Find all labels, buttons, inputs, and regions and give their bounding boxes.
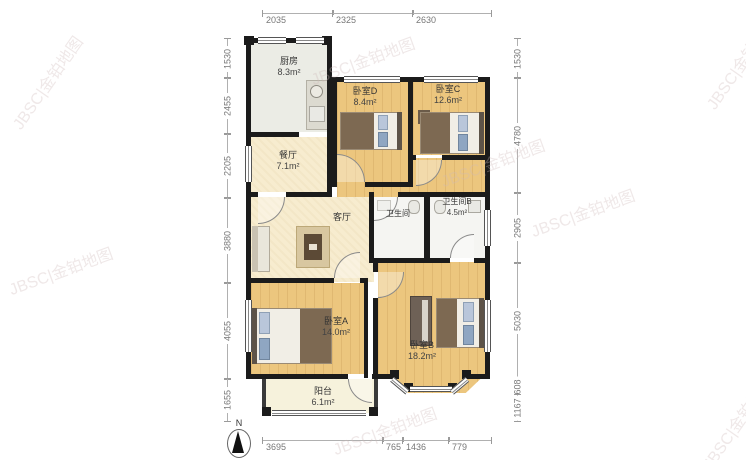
compass-north-label: N — [222, 418, 256, 428]
room-area: 6.1m² — [311, 397, 334, 407]
bed-pillow — [259, 338, 270, 360]
room-area: 4.5m² — [447, 208, 467, 217]
dimension-left: 4055 — [224, 282, 231, 380]
room-name: 卧室A — [324, 316, 348, 326]
bed-pillow — [458, 115, 468, 132]
window — [484, 300, 491, 352]
room-label-bedroom-b: 卧室B18.2m² — [390, 340, 454, 362]
compass-icon: N — [222, 420, 256, 458]
wall — [332, 182, 337, 187]
room-area: 14.0m² — [322, 327, 350, 337]
window — [272, 410, 366, 416]
room-name: 卧室D — [353, 86, 378, 96]
dimension-right: 2905 — [514, 192, 521, 264]
bed-blanket — [421, 113, 450, 153]
dimension-bottom: 765 — [382, 437, 404, 444]
dimension-left: 1530 — [224, 38, 231, 79]
room-name: 卫生间 — [386, 209, 410, 218]
watermark: JBSC|金铂地图 — [5, 240, 116, 300]
wall — [474, 258, 490, 263]
room-name: 客厅 — [333, 212, 351, 222]
dimension-bottom: 3695 — [262, 437, 384, 444]
room-name: 卫生间B — [442, 197, 471, 206]
bed-headboard — [479, 112, 484, 154]
room-name: 卧室C — [436, 84, 461, 94]
dimension-top: 2035 — [262, 10, 334, 17]
window — [258, 37, 286, 44]
room-label-living: 客厅 — [320, 212, 364, 223]
room-area: 8.3m² — [277, 67, 300, 77]
room-label-balcony: 阳台6.1m² — [292, 386, 354, 408]
balcony-post — [262, 407, 271, 416]
window — [296, 37, 324, 44]
wall — [365, 182, 412, 187]
room-label-bathroom-b: 卫生间B4.5m² — [428, 196, 486, 218]
room-name: 餐厅 — [279, 150, 297, 160]
dimension-right: 1167 — [514, 394, 521, 422]
bed-pillow — [458, 134, 468, 151]
dimension-top: 2325 — [332, 10, 414, 17]
dimension-left: 1655 — [224, 378, 231, 422]
dimension-bottom: 779 — [448, 437, 492, 444]
room-area: 12.6m² — [434, 95, 462, 105]
room-label-bathroom: 卫生间 — [372, 208, 424, 219]
wall — [373, 262, 378, 272]
dimension-right: 4780 — [514, 77, 521, 194]
window — [424, 76, 478, 83]
wardrobe — [410, 296, 432, 346]
room-name: 厨房 — [280, 56, 298, 66]
room-area: 8.4m² — [353, 97, 376, 107]
dimension-top: 2630 — [412, 10, 492, 17]
tv — [309, 244, 317, 250]
wall — [286, 192, 327, 197]
bed-pillow — [259, 312, 270, 334]
window — [245, 300, 252, 352]
bed-pillow — [378, 132, 388, 147]
balcony-post — [369, 407, 378, 416]
window — [344, 76, 400, 83]
wall — [246, 38, 251, 138]
kitchen-sink — [310, 85, 323, 98]
bed-blanket — [341, 113, 374, 149]
dimension-left: 2455 — [224, 77, 231, 135]
bed-headboard — [397, 112, 402, 150]
room-area: 18.2m² — [408, 351, 436, 361]
watermark: JBSC|金铂地图 — [695, 370, 746, 460]
wall — [369, 258, 450, 263]
room-label-bedroom-c: 卧室C12.6m² — [412, 84, 484, 106]
wall — [246, 132, 299, 137]
floor-plan: 厨房8.3m² 卧室D8.4m² 卧室C12.6m² 餐厅7.1m² 客厅 卫生… — [0, 0, 746, 460]
room-label-kitchen: 厨房8.3m² — [258, 56, 320, 78]
bed-pillow — [463, 325, 474, 345]
dimension-left: 2205 — [224, 133, 231, 199]
watermark: JBSC|金铂地图 — [5, 30, 87, 133]
compass-needle — [232, 431, 244, 453]
dimension-right: 5030 — [514, 262, 521, 380]
watermark: JBSC|金铂地图 — [527, 182, 638, 242]
dimension-left: 3880 — [224, 197, 231, 284]
stove — [309, 106, 325, 122]
wall — [442, 155, 490, 160]
room-area: 7.1m² — [276, 161, 299, 171]
room-label-bedroom-a: 卧室A14.0m² — [304, 316, 368, 338]
bed-pillow — [463, 302, 474, 322]
wall — [373, 298, 378, 378]
room-label-dining: 餐厅7.1m² — [256, 150, 320, 172]
room-name: 卧室B — [410, 340, 434, 350]
bay-window — [410, 386, 452, 392]
window — [245, 146, 252, 182]
watermark: JBSC|金铂地图 — [699, 10, 746, 113]
bed-headboard — [252, 308, 257, 364]
dimension-bottom: 1436 — [402, 437, 450, 444]
dimension-right: 1530 — [514, 38, 521, 79]
room-label-bedroom-d: 卧室D8.4m² — [332, 86, 398, 108]
wall — [246, 278, 334, 283]
room-name: 阳台 — [314, 386, 332, 396]
bed-pillow — [378, 115, 388, 130]
wall — [246, 192, 258, 197]
sofa-back — [252, 226, 258, 272]
